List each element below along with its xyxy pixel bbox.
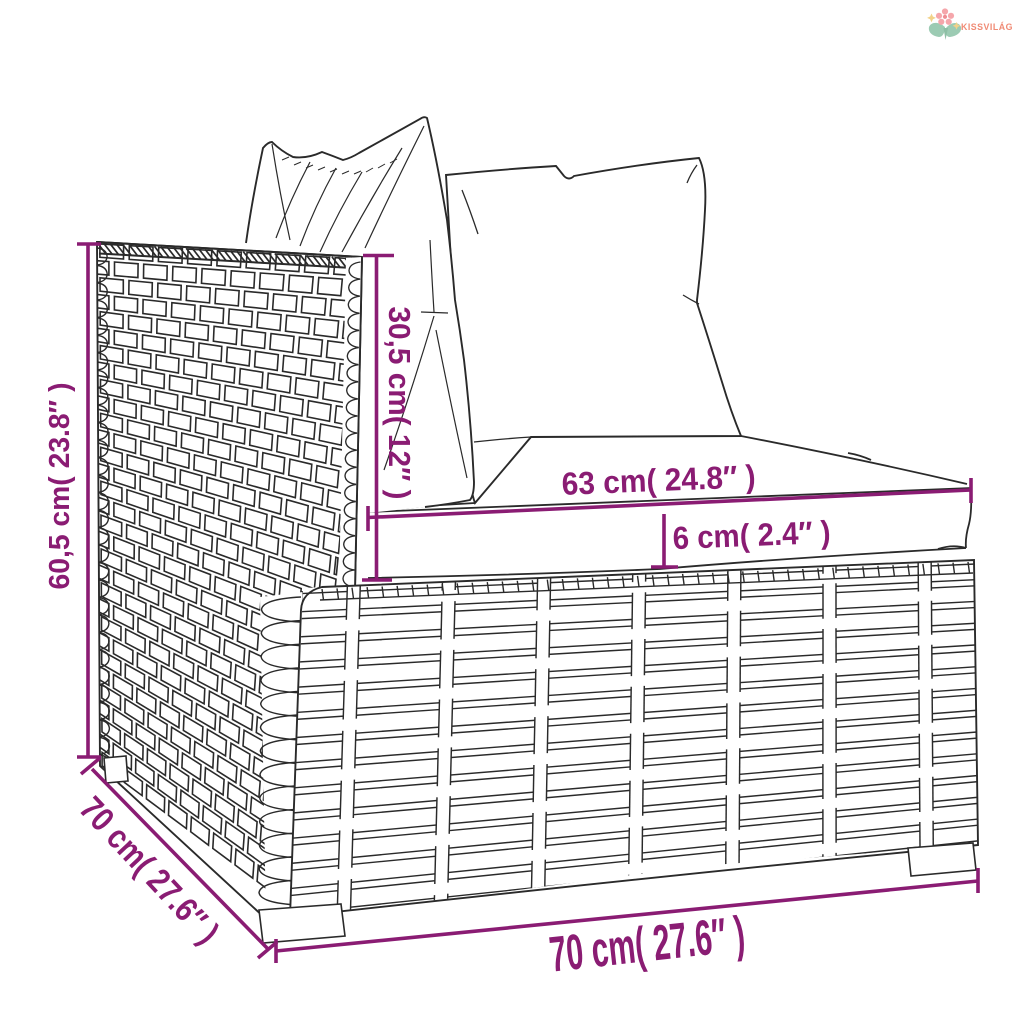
svg-text:30,5 cm( 12″ ): 30,5 cm( 12″ ) bbox=[382, 307, 417, 500]
svg-text:KISSVILÁG: KISSVILÁG bbox=[961, 22, 1013, 32]
svg-text:6 cm( 2.4″ ): 6 cm( 2.4″ ) bbox=[672, 514, 831, 556]
svg-text:60,5 cm( 23.8″ ): 60,5 cm( 23.8″ ) bbox=[44, 383, 76, 590]
